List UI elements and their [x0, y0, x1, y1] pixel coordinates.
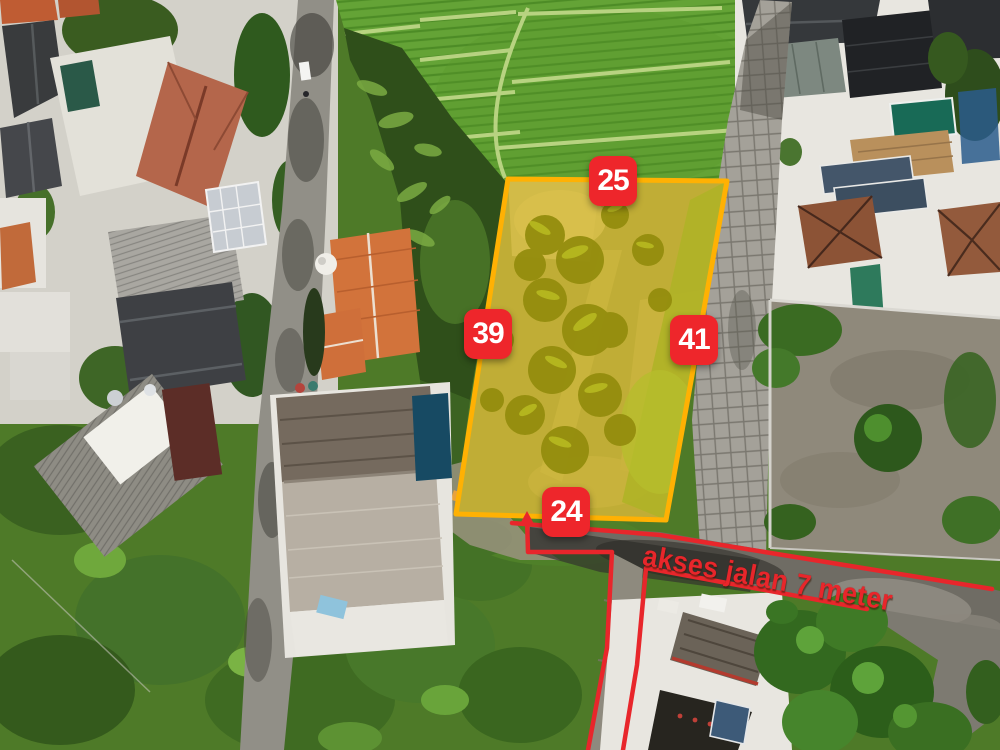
dimension-badge-top: 25 — [589, 156, 637, 206]
dimension-badge-bottom: 24 — [542, 487, 590, 537]
orange-roof — [0, 0, 58, 24]
aerial-scene — [0, 0, 1000, 750]
tree — [854, 404, 922, 472]
swimming-pool — [412, 393, 452, 481]
solar-panels — [710, 700, 750, 744]
walled-empty-lot — [752, 300, 1000, 560]
dimension-badge-left: 39 — [464, 309, 512, 359]
aerial-land-listing-photo: 25 39 41 24 akses jalan 7 meter — [0, 0, 1000, 750]
water-tank-dome — [315, 253, 337, 275]
dimension-badge-right: 41 — [670, 315, 718, 365]
blue-pool — [958, 88, 1000, 164]
